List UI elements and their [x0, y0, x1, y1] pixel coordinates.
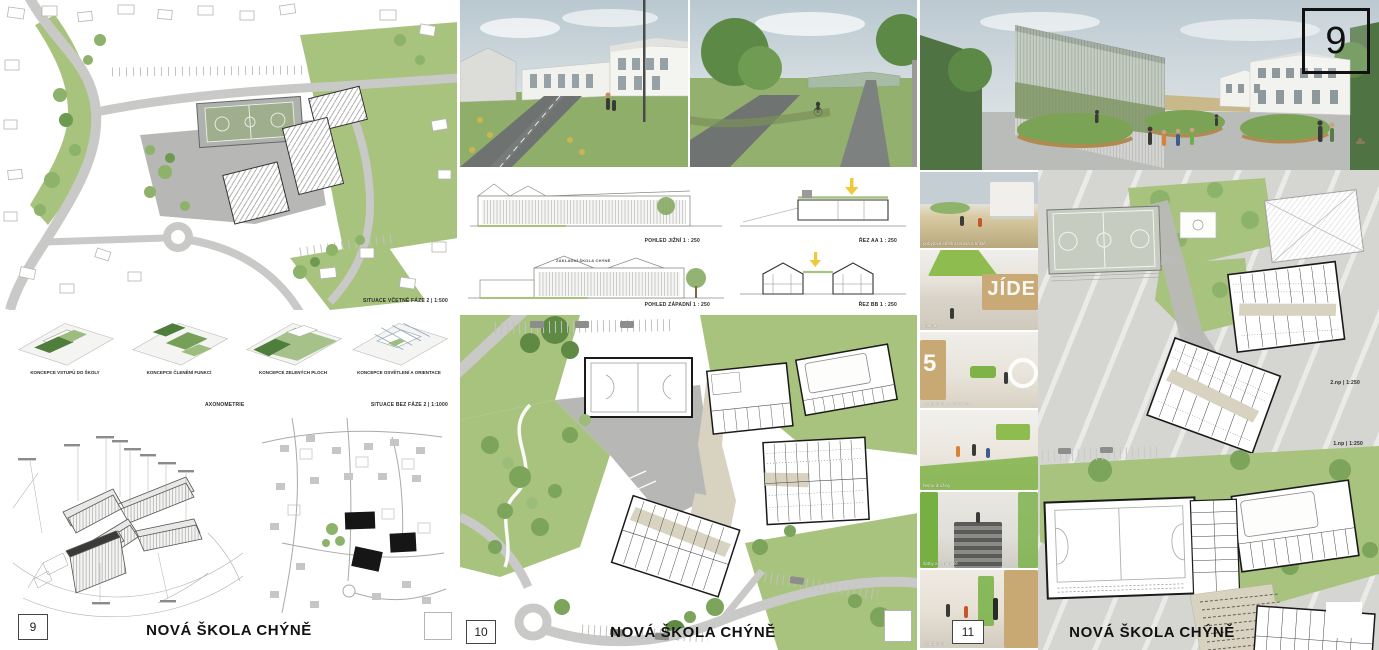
- site-plan-phase2-drawing: [0, 0, 458, 310]
- facade-sign-text: ZÁKLADNÍ ŠKOLA CHÝNĚ: [556, 258, 611, 263]
- interior-view-canteen: JÍDE jídelna: [920, 250, 1038, 330]
- figure: [986, 448, 990, 458]
- site-plan2-label: SITUACE BEZ FÁZE 2 | 1:1000: [310, 402, 448, 408]
- interior-caption: vstupní hala: [923, 641, 947, 646]
- daylight-arrow-icon: [810, 252, 822, 267]
- floor2-plan-label: 2.np | 1:250: [1280, 380, 1360, 386]
- section-aa-label: ŘEZ AA 1 : 250: [815, 238, 897, 244]
- green-panel: [1018, 492, 1038, 568]
- board-left-title: NOVÁ ŠKOLA CHÝNĚ: [146, 622, 312, 639]
- section-bb-drawing: [738, 250, 910, 308]
- axonometric-drawing: [8, 413, 248, 618]
- greenway-rendering: [690, 0, 918, 167]
- board-middle: POHLED JIŽNÍ 1 : 250 ŘEZ AA 1 : 250 ZÁKL…: [460, 0, 918, 650]
- interior-caption: pobytová střešní terasa a hřiště: [923, 241, 986, 246]
- interior-view-playroom: herna družiny: [920, 410, 1038, 490]
- interior-view-entry: vstupní hala 11: [920, 570, 1038, 648]
- concept-entrances-label: KONCEPCE VSTUPŮ DO ŠKOLY: [10, 370, 120, 375]
- concept-lighting-drawing: [344, 316, 454, 368]
- figure: [976, 512, 980, 523]
- interior-caption: jídelna: [923, 323, 936, 328]
- floor-plans-drawing: [1040, 170, 1379, 650]
- concept-diagram-functions: KONCEPCE ČLENĚNÍ FUNKCÍ: [124, 316, 234, 375]
- figure: [978, 218, 982, 227]
- concept-entrances-drawing: [10, 316, 120, 368]
- interior-view-terrace: pobytová střešní terasa a hřiště: [920, 172, 1038, 248]
- figure: [972, 444, 976, 456]
- interior-caption: vstupní hala a knihovna: [923, 401, 970, 406]
- board-right-title: NOVÁ ŠKOLA CHÝNĚ: [1069, 624, 1235, 641]
- terrace-building: [990, 182, 1034, 219]
- board-divider: [917, 0, 920, 650]
- green-skylight: [928, 250, 998, 276]
- hall-supergraphic: 5: [923, 350, 936, 378]
- canteen-supergraphic: JÍDE: [988, 278, 1036, 301]
- stamp-box-middle: [884, 610, 912, 642]
- stamp-box-right: [1326, 602, 1362, 638]
- concept-diagram-greenery: KONCEPCE ZELENÝCH PLOCH: [238, 316, 348, 375]
- figure: [956, 446, 960, 457]
- floor1-plan-label: 1.np | 1:250: [1283, 441, 1363, 447]
- west-elevation-label: POHLED ZÁPADNÍ 1 : 250: [600, 302, 710, 308]
- green-ceiling-panel: [996, 424, 1030, 440]
- letter-o-graphic: [1008, 358, 1038, 388]
- section-aa-drawing: [738, 176, 910, 236]
- interior-caption: šatny a schodiště: [923, 561, 958, 566]
- ground-floor-site-plan-drawing: [460, 315, 918, 650]
- green-panel: [920, 492, 938, 568]
- concept-diagram-entrances: KONCEPCE VSTUPŮ DO ŠKOLY: [10, 316, 120, 375]
- south-elevation-label: POHLED JIŽNÍ 1 : 250: [600, 238, 700, 244]
- panel-number-box-middle: 10: [466, 620, 496, 644]
- green-seat: [970, 366, 996, 378]
- figure: [1004, 372, 1008, 384]
- board-left: SITUACE VČETNĚ FÁZE 2 | 1:500 KONCEPCE V…: [0, 0, 458, 650]
- staircase: [954, 522, 1002, 568]
- concept-greenery-drawing: [238, 316, 348, 368]
- interior-view-stairs: šatny a schodiště: [920, 492, 1038, 568]
- competition-poster: SITUACE VČETNĚ FÁZE 2 | 1:500 KONCEPCE V…: [0, 0, 1379, 650]
- board-middle-title: NOVÁ ŠKOLA CHÝNĚ: [610, 624, 776, 641]
- concept-functions-drawing: [124, 316, 234, 368]
- board-divider: [457, 0, 460, 650]
- panel-number-box-right: 11: [952, 620, 984, 644]
- figure: [993, 598, 998, 620]
- interior-view-hall: 5 vstupní hala a knihovna: [920, 332, 1038, 408]
- figure: [946, 604, 950, 617]
- green-panel: [978, 576, 994, 626]
- section-bb-label: ŘEZ BB 1 : 250: [815, 302, 897, 308]
- terrace-green: [930, 202, 970, 214]
- wood-wall: [1004, 570, 1038, 648]
- daylight-arrow-icon: [845, 178, 859, 195]
- figure: [950, 308, 954, 319]
- concept-greenery-label: KONCEPCE ZELENÝCH PLOCH: [238, 370, 348, 375]
- site-plan-phase2-label: SITUACE VČETNĚ FÁZE 2 | 1:500: [300, 298, 448, 304]
- street-view-rendering: [460, 0, 688, 167]
- concept-diagram-lighting: KONCEPCE OSVĚTLENÍ A ORIENTACE: [344, 316, 454, 375]
- south-elevation-drawing: [470, 176, 722, 236]
- concept-lighting-label: KONCEPCE OSVĚTLENÍ A ORIENTACE: [344, 370, 454, 375]
- sheet-number-box: 9: [1302, 8, 1370, 74]
- concept-functions-label: KONCEPCE ČLENĚNÍ FUNKCÍ: [124, 370, 234, 375]
- interior-caption: herna družiny: [923, 483, 950, 488]
- figure: [960, 216, 964, 226]
- axonometry-label: AXONOMETRIE: [205, 402, 244, 408]
- stamp-box-left: [424, 612, 452, 640]
- figure: [964, 606, 968, 618]
- panel-number-box-left: 9: [18, 614, 48, 640]
- site-plan-no-phase2-drawing: [252, 413, 450, 618]
